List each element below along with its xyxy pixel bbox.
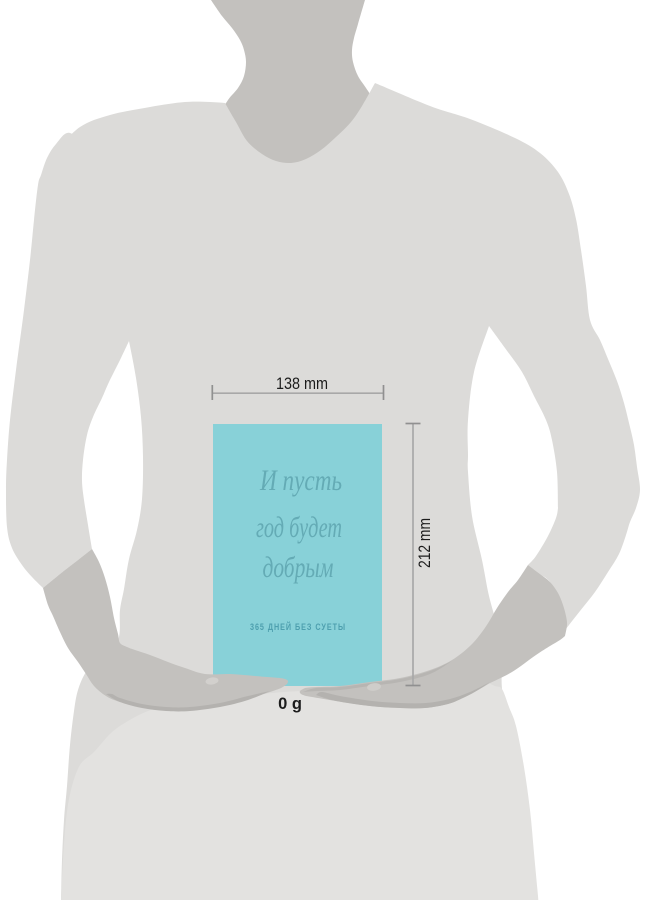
svg-text:0 g: 0 g	[278, 695, 302, 713]
svg-text:365 ДНЕЙ БЕЗ СУЕТЫ: 365 ДНЕЙ БЕЗ СУЕТЫ	[250, 621, 346, 632]
svg-text:И пусть: И пусть	[259, 464, 342, 497]
svg-text:добрым: добрым	[263, 551, 334, 584]
svg-text:138 mm: 138 mm	[276, 375, 328, 393]
svg-text:212 mm: 212 mm	[416, 518, 434, 568]
svg-text:год будет: год будет	[256, 511, 342, 544]
